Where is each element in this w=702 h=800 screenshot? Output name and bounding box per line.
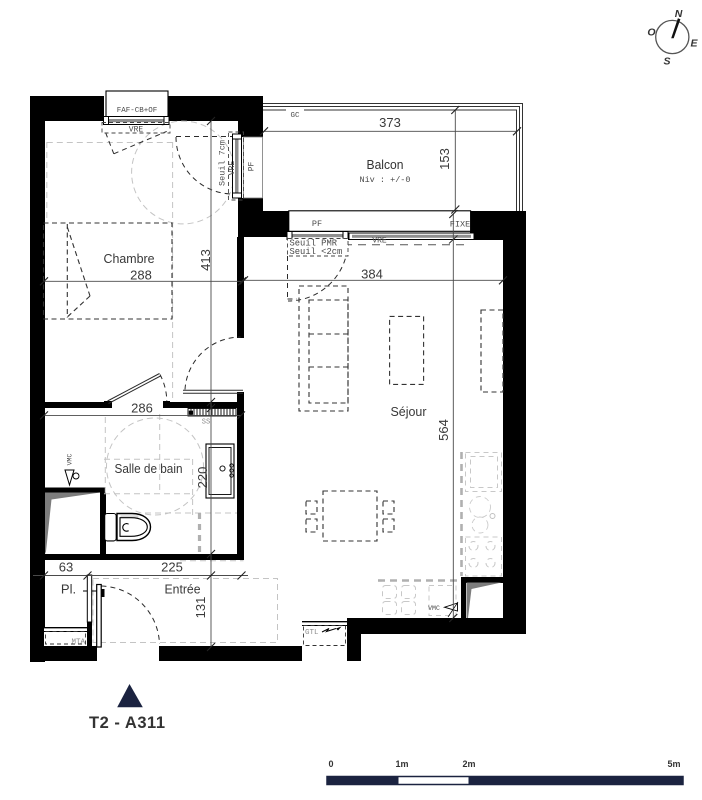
svg-text:384: 384: [361, 267, 383, 282]
svg-text:Séjour: Séjour: [391, 404, 428, 419]
svg-text:O: O: [647, 27, 655, 39]
svg-text:VRE: VRE: [129, 126, 144, 135]
svg-text:GTL: GTL: [305, 629, 319, 637]
svg-text:373: 373: [379, 115, 401, 130]
svg-text:T2 - A311: T2 - A311: [89, 714, 165, 732]
svg-text:Chambre: Chambre: [104, 251, 155, 266]
svg-text:S: S: [663, 56, 670, 68]
svg-text:MTA: MTA: [71, 639, 85, 647]
svg-text:Balcon: Balcon: [367, 158, 404, 172]
svg-text:PF: PF: [312, 219, 322, 229]
svg-text:Seuil <2cm: Seuil <2cm: [290, 247, 343, 257]
svg-text:SS: SS: [202, 419, 210, 427]
svg-text:VRE: VRE: [228, 161, 237, 176]
svg-text:Pl.: Pl.: [61, 582, 76, 597]
svg-text:E: E: [690, 38, 698, 50]
svg-text:153: 153: [437, 148, 452, 170]
svg-text:286: 286: [131, 401, 153, 416]
svg-text:Entrée: Entrée: [165, 582, 201, 597]
svg-text:564: 564: [436, 419, 451, 441]
svg-text:5m: 5m: [667, 759, 680, 769]
svg-text:0: 0: [328, 759, 333, 769]
svg-text:225: 225: [161, 560, 183, 575]
svg-text:63: 63: [59, 560, 73, 575]
svg-text:FAF-CB+OF: FAF-CB+OF: [117, 107, 158, 115]
svg-text:2m: 2m: [462, 759, 475, 769]
svg-text:VMC: VMC: [428, 605, 440, 612]
svg-text:288: 288: [130, 268, 152, 283]
svg-text:VRE: VRE: [372, 237, 387, 246]
svg-text:N: N: [675, 8, 683, 20]
svg-text:GC: GC: [290, 112, 300, 120]
svg-text:Salle de bain: Salle de bain: [115, 461, 183, 476]
svg-text:1m: 1m: [395, 759, 408, 769]
svg-text:Niv : +/-0: Niv : +/-0: [359, 175, 410, 185]
svg-text:413: 413: [198, 249, 213, 271]
svg-text:VMC: VMC: [67, 454, 74, 466]
svg-text:220: 220: [195, 467, 210, 489]
svg-text:Seuil 7cm: Seuil 7cm: [218, 140, 228, 186]
svg-text:131: 131: [193, 597, 208, 619]
svg-text:PF: PF: [248, 162, 257, 172]
